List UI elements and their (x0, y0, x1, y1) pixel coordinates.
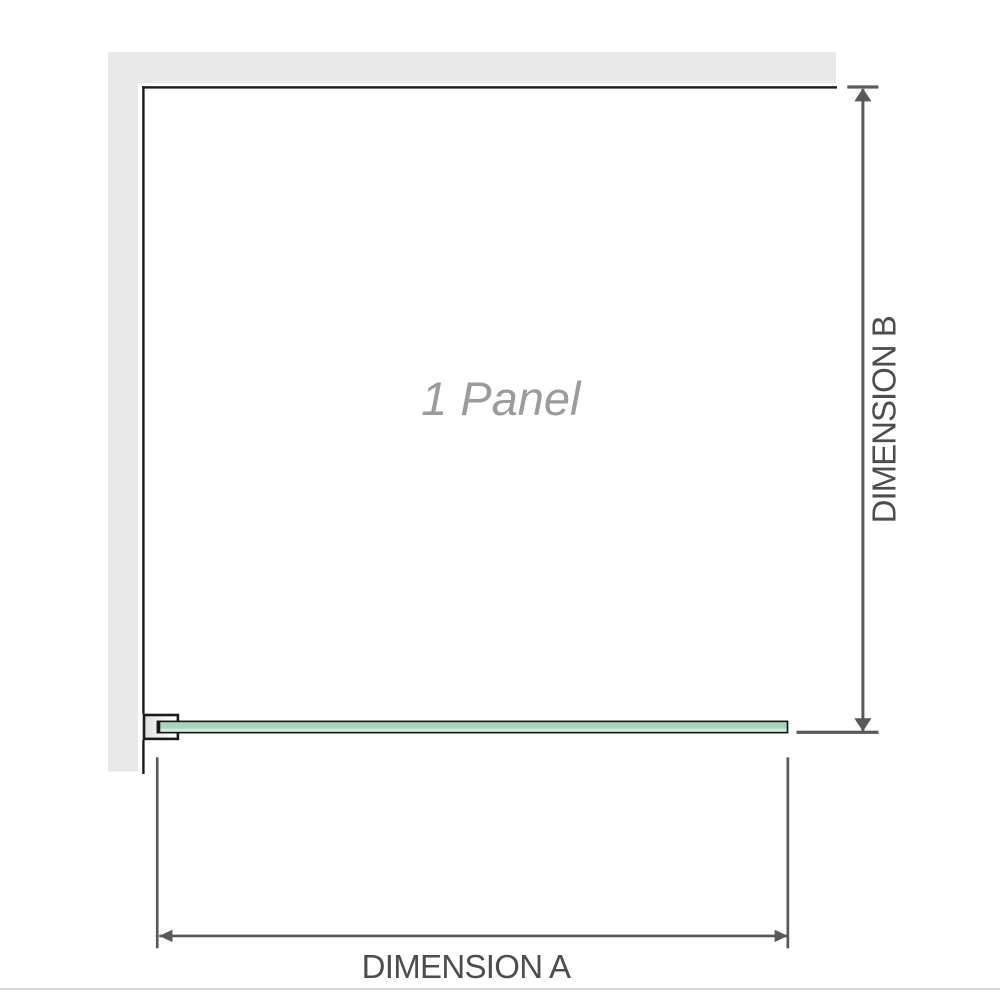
svg-text:DIMENSION B: DIMENSION B (866, 316, 903, 523)
svg-text:1 Panel: 1 Panel (421, 372, 582, 425)
svg-text:DIMENSION A: DIMENSION A (362, 948, 571, 985)
